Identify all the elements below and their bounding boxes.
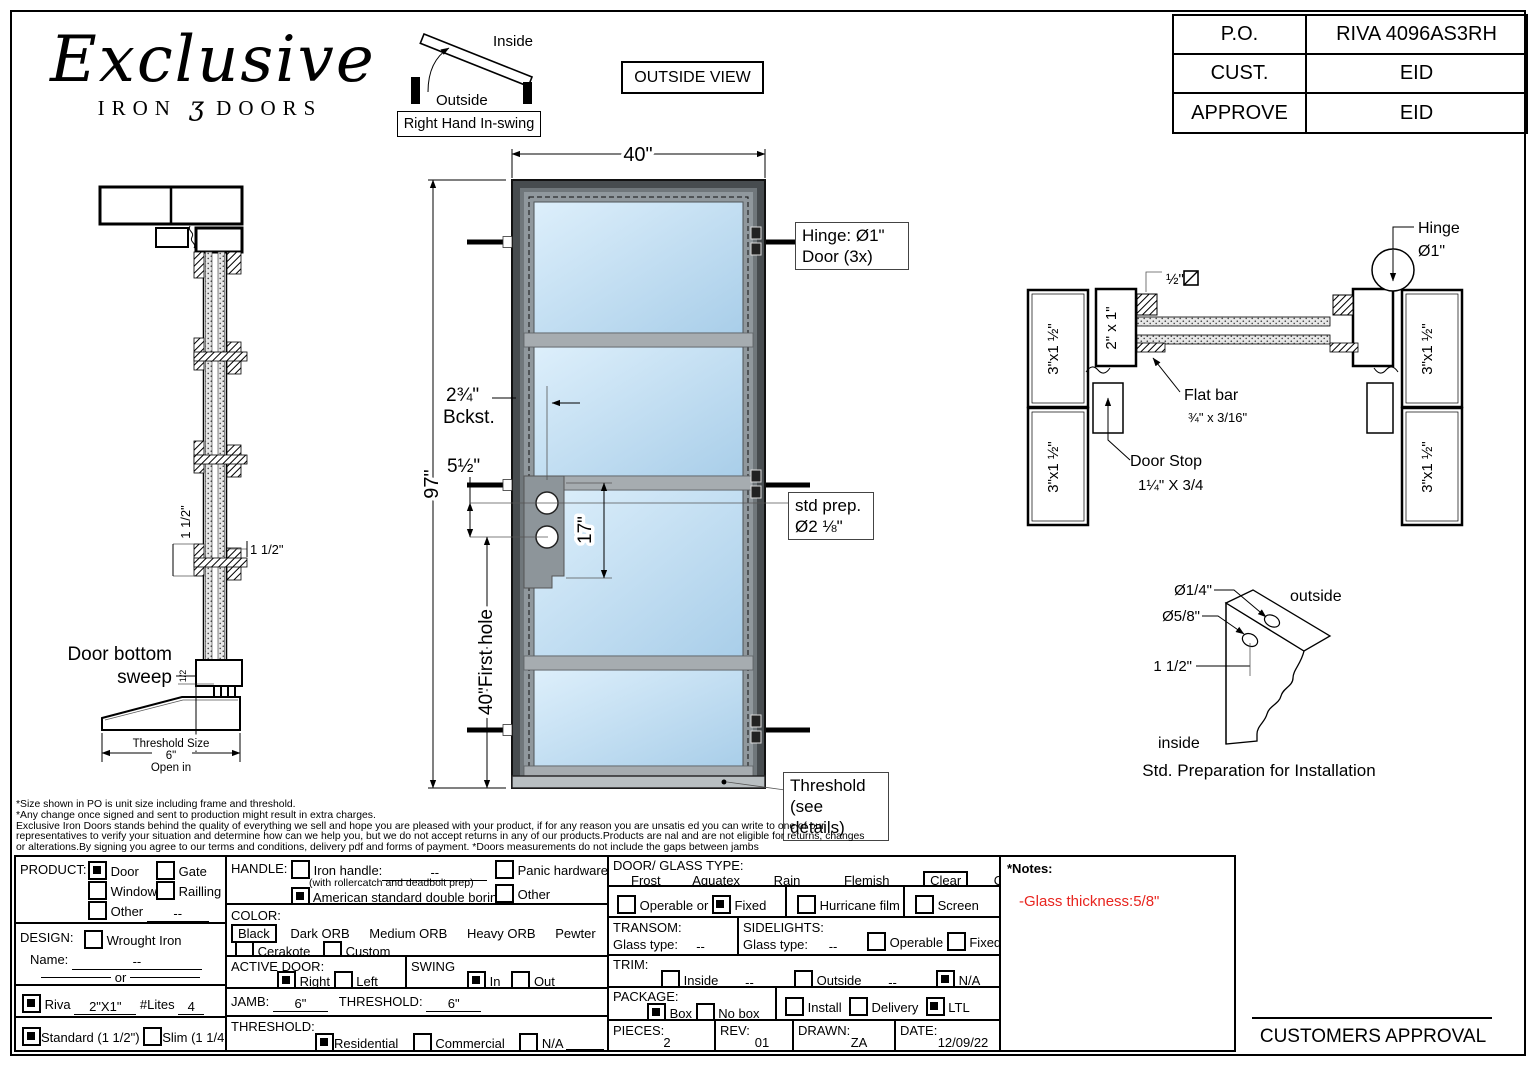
jamb-value[interactable]: 6" — [273, 996, 328, 1012]
delivery-checkbox[interactable] — [849, 997, 868, 1016]
sidelights-label: SIDELIGHTS: — [743, 920, 824, 935]
swing-direction-tag: Right Hand In-swing — [397, 111, 541, 137]
threshold-size-value: 6" — [166, 750, 176, 762]
threshold-open-label: Open in — [151, 762, 191, 774]
active-door-section: ACTIVE DOOR: Right Left — [225, 955, 407, 989]
dim-lock-top: 5½" — [447, 456, 480, 477]
dim-backset-word: Bckst. — [443, 407, 495, 428]
iron-handle-checkbox[interactable] — [291, 860, 310, 879]
logo-script-text: Exclusive — [50, 30, 370, 90]
tube-size-label: 2" x 1" — [1103, 306, 1120, 349]
notes-title: *Notes: — [1007, 861, 1053, 876]
vertical-section: 1 1/2" 1 1/2" 1/2 Door bottom sweep — [67, 187, 283, 774]
dim-height: 97" — [421, 469, 443, 498]
logo-ornament: ʒ — [189, 92, 204, 122]
sidelights-section: SIDELIGHTS: Glass type:-- Operable Fixed — [737, 916, 1001, 956]
hurricane-film-section: Hurricane film — [785, 885, 905, 918]
shipping-section: Install Delivery LTL — [775, 986, 1001, 1021]
threshold-na-checkbox[interactable] — [519, 1033, 538, 1052]
product-door-checkbox[interactable] — [88, 861, 107, 880]
po-row: P.O. RIVA 4096AS3RH — [1173, 15, 1527, 54]
slim-checkbox[interactable] — [143, 1027, 162, 1046]
jamb-threshold-value[interactable]: 6" — [426, 996, 481, 1012]
product-gate-checkbox[interactable] — [156, 861, 175, 880]
door-bottom-sweep-label1: Door bottom — [67, 644, 172, 665]
glass-thickness-note: -Glass thickness:5/8" — [1019, 893, 1159, 910]
std-prep-callout: std prep. Ø2 ⅛" — [788, 492, 874, 540]
square-bar-label: ½" — [1166, 271, 1184, 288]
design-or-label: or — [115, 970, 127, 985]
screen-checkbox[interactable] — [915, 895, 934, 914]
date-value[interactable]: 12/09/22 — [932, 1035, 994, 1051]
dim-first-hole: 40"First hole — [476, 609, 497, 715]
section-dim-h: 1 1/2" — [250, 542, 284, 557]
door-elevation: 40" 97" — [421, 144, 810, 790]
threshold-size-label: Threshold Size — [133, 738, 210, 750]
jamb-size-label: 3"x1 ½" — [1045, 323, 1062, 375]
color-label: COLOR: — [231, 908, 281, 923]
sidelights-glass-type-value[interactable]: -- — [808, 939, 858, 955]
threshold-section: THRESHOLD: Residential Commercial N/A — [225, 1015, 609, 1052]
install-caption: Std. Preparation for Installation — [1142, 761, 1375, 780]
cust-key: CUST. — [1173, 54, 1306, 93]
jamb-threshold-label: THRESHOLD: — [339, 994, 423, 1009]
handle-section: HANDLE: Iron handle:-- (with rollercatch… — [225, 855, 609, 905]
standard-checkbox[interactable] — [22, 1027, 41, 1046]
door-stop-size: 1¼" X 3/4 — [1138, 477, 1203, 494]
design-section: DESIGN: Wrought Iron Name: -- or — [14, 922, 227, 986]
pieces-value[interactable]: 2 — [647, 1035, 687, 1051]
company-logo: Exclusive IRON ʒ DOORS — [50, 30, 370, 122]
glass-type-section: DOOR/ GLASS TYPE: Frost Aquatex Rain Fle… — [607, 855, 1001, 887]
panic-hardware-checkbox[interactable] — [495, 860, 514, 879]
install-hole-large: Ø5/8" — [1162, 608, 1200, 625]
swing-inside-label: Inside — [493, 33, 533, 50]
po-row: APPROVE EID — [1173, 93, 1527, 133]
trim-section: TRIM: Inside -- Outside -- N/A — [607, 954, 1001, 988]
threshold-residential-checkbox[interactable] — [315, 1033, 334, 1052]
cust-value: EID — [1306, 54, 1527, 93]
fixed-checkbox[interactable] — [712, 895, 731, 914]
install-offset: 1 1/2" — [1153, 658, 1192, 675]
threshold-commercial-checkbox[interactable] — [413, 1033, 432, 1052]
lites-label: #Lites — [140, 997, 175, 1012]
dim-holes: 17" — [575, 516, 596, 544]
outside-view-label: OUTSIDE VIEW — [621, 61, 764, 94]
hinge-diameter: Ø1" — [1418, 243, 1445, 260]
product-window-checkbox[interactable] — [88, 881, 107, 900]
swing-outside-label: Outside — [436, 92, 488, 109]
design-label: DESIGN: — [20, 930, 73, 945]
po-value: RIVA 4096AS3RH — [1306, 15, 1527, 54]
lites-value[interactable]: 4 — [178, 999, 204, 1015]
door-bottom-sweep-label2: sweep — [117, 667, 172, 688]
jamb-section: JAMB: 6" THRESHOLD: 6" — [225, 987, 609, 1017]
install-checkbox[interactable] — [785, 997, 804, 1016]
signature-line[interactable] — [1252, 1017, 1492, 1019]
handle-label: HANDLE: — [231, 861, 287, 876]
swing-section: SWING In Out — [405, 955, 609, 989]
dim-width: 40" — [623, 144, 652, 166]
flat-bar-label: Flat bar — [1184, 387, 1239, 404]
logo-iron-text: IRON — [98, 96, 177, 120]
handle-other-checkbox[interactable] — [495, 884, 514, 903]
notes-section: *Notes: -Glass thickness:5/8" — [999, 855, 1236, 1052]
hurricane-film-checkbox[interactable] — [797, 895, 816, 914]
frame-profile-section: Standard (1 1/2") Slim (1 1/4") — [14, 1016, 227, 1052]
product-section: PRODUCT: Door Gate Window Railling Other… — [14, 855, 227, 924]
hinge-label: Hinge — [1418, 220, 1460, 237]
product-other-checkbox[interactable] — [88, 901, 107, 920]
flat-bar-size: ¾" x 3/16" — [1188, 410, 1247, 425]
transom-glass-type-value[interactable]: -- — [678, 939, 723, 955]
riva-section: Riva 2"X1" #Lites 4 — [14, 984, 227, 1018]
section-dim-v: 1 1/2" — [178, 505, 193, 539]
pieces-cell: PIECES: 2 — [607, 1019, 716, 1052]
disclaimer-text: *Size shown in PO is unit size including… — [16, 800, 776, 854]
color-section: COLOR: Black Dark ORB Medium ORB Heavy O… — [225, 903, 609, 957]
sidelights-fixed-checkbox[interactable] — [947, 932, 966, 951]
glass-mode-section: Operable or Fixed — [607, 885, 787, 918]
swing-diagram: Inside Outside — [411, 33, 533, 109]
trim-label: TRIM: — [613, 957, 648, 972]
product-railing-checkbox[interactable] — [156, 881, 175, 900]
po-table: P.O. RIVA 4096AS3RH CUST. EID APPROVE EI… — [1172, 14, 1528, 134]
jamb-size-label: 3"x1 ½" — [1419, 441, 1436, 493]
transom-label: TRANSOM: — [613, 920, 682, 935]
jamb-size-label: 3"x1 ½" — [1045, 441, 1062, 493]
color-option[interactable]: Heavy ORB — [467, 926, 536, 941]
transom-section: TRANSOM: Glass type:-- — [607, 916, 739, 956]
sidelights-operable-checkbox[interactable] — [867, 932, 886, 951]
jamb-size-label: 3"x1 ½" — [1419, 323, 1436, 375]
customers-approval-label: CUSTOMERS APPROVAL — [1240, 1026, 1506, 1048]
swing-label: SWING — [411, 959, 455, 974]
riva-size-value[interactable]: 2"X1" — [74, 999, 136, 1015]
po-key: P.O. — [1173, 15, 1306, 54]
installation-detail: Ø1/4" Ø5/8" 1 1/2" outside inside Std. P… — [1142, 582, 1375, 780]
drawn-cell: DRAWN: ZA — [792, 1019, 896, 1052]
product-label: PRODUCT: — [20, 862, 86, 877]
threshold-label: THRESHOLD: — [231, 1019, 315, 1034]
drawing-sheet: Inside Outside 40" 97" — [0, 0, 1536, 1067]
riva-checkbox[interactable] — [22, 994, 41, 1013]
ltl-checkbox[interactable] — [926, 997, 945, 1016]
approve-key: APPROVE — [1173, 93, 1306, 133]
horizontal-cross-section: 3"x1 ½" 3"x1 ½" 2" x 1" ½" Flat bar ¾" x… — [1028, 220, 1462, 525]
color-option[interactable]: Medium ORB — [369, 926, 447, 941]
po-row: CUST. EID — [1173, 54, 1527, 93]
date-cell: DATE: 12/09/22 — [894, 1019, 1001, 1052]
install-inside: inside — [1158, 735, 1200, 752]
design-name-label: Name: — [30, 952, 68, 967]
package-section: PACKAGE: Box No box — [607, 986, 777, 1021]
operable-checkbox[interactable] — [617, 895, 636, 914]
rev-value[interactable]: 01 — [742, 1035, 782, 1051]
product-other-value[interactable]: -- — [147, 906, 209, 922]
install-outside: outside — [1290, 588, 1342, 605]
transom-glass-type-label: Glass type: — [613, 937, 678, 952]
threshold-na-value[interactable] — [566, 1034, 604, 1050]
dim-backset: 2¾" — [446, 385, 479, 406]
logo-doors-text: DOORS — [216, 96, 322, 120]
design-wrought-iron-checkbox[interactable] — [84, 930, 103, 949]
door-stop-label: Door Stop — [1130, 453, 1202, 470]
design-name-value[interactable]: -- — [72, 954, 202, 970]
sidelights-glass-type-label: Glass type: — [743, 937, 808, 952]
screen-section: Screen — [903, 885, 1001, 918]
color-option[interactable]: Pewter — [555, 926, 595, 941]
package-label: PACKAGE: — [613, 989, 679, 1004]
rev-cell: REV: 01 — [714, 1019, 794, 1052]
jamb-label: JAMB: — [231, 994, 269, 1009]
color-option[interactable]: Dark ORB — [290, 926, 349, 941]
approve-value: EID — [1306, 93, 1527, 133]
drawn-value[interactable]: ZA — [838, 1035, 880, 1051]
install-hole-small: Ø1/4" — [1174, 582, 1212, 599]
hinge-callout: Hinge: Ø1" Door (3x) — [795, 222, 909, 270]
